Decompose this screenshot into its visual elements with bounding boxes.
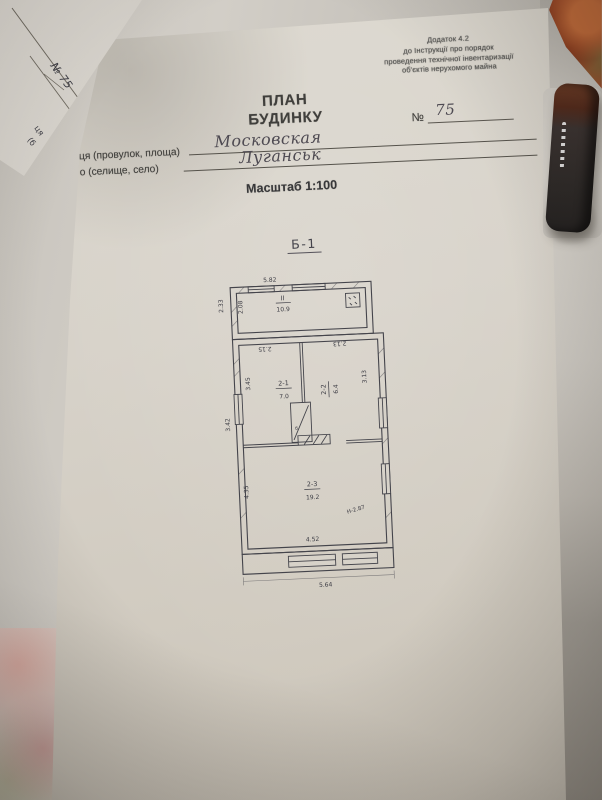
dim-veranda-width: 5.82	[263, 277, 277, 285]
stove-symbol	[298, 434, 330, 445]
room1-area: 7.0	[279, 393, 289, 400]
city-field-label: о (селище, село)	[79, 164, 158, 179]
dark-object-area	[543, 80, 602, 255]
underlay-fragment: ця	[32, 124, 45, 138]
dim-room3-side: 4.35	[243, 485, 251, 499]
dim-room2-top: 2.13	[333, 339, 347, 347]
room3-number: 2-3	[307, 480, 318, 488]
number-value-handwritten: 75	[435, 100, 456, 119]
street-field-label: ця (провулок, площа)	[79, 147, 180, 163]
dim-left-wall: 3.42	[225, 418, 233, 432]
building-label: Б-1	[287, 236, 321, 255]
document-content: Додаток 4.2 до Інструкції про порядок пр…	[82, 16, 587, 800]
appendix-note: Додаток 4.2 до Інструкції про порядок пр…	[360, 31, 538, 78]
furnace-symbol	[345, 293, 360, 308]
dim-room1-top: 2.15	[258, 345, 272, 353]
plan-document-sheet: Додаток 4.2 до Інструкції про порядок пр…	[0, 0, 602, 800]
interior-partitions	[239, 339, 383, 448]
number-underline	[428, 119, 514, 124]
photo-of-building-plan-document: Додаток 4.2 до Інструкції про порядок пр…	[0, 0, 602, 800]
number-label: №	[411, 112, 424, 125]
dim-bottom-inner: 4.52	[306, 536, 320, 544]
dim-veranda-left-outer: 2.33	[218, 299, 226, 313]
room1-number: 2-1	[278, 379, 289, 387]
wall-outlines	[230, 281, 394, 575]
room-veranda-area: 10.9	[276, 306, 290, 314]
dim-veranda-left-inner: 2.08	[237, 300, 245, 314]
scale-label: Масштаб 1:100	[191, 175, 391, 198]
underlay-number: № 75	[47, 59, 75, 91]
city-underline	[184, 155, 538, 172]
room2-area: 6.4	[333, 384, 340, 394]
dim-room1-side: 3.45	[245, 377, 253, 391]
closet-mark: б	[295, 426, 298, 432]
dim-bottom-outer: 5.64	[319, 581, 333, 589]
height-note: Н-2.87	[346, 505, 366, 516]
room-veranda-number: II	[281, 294, 285, 302]
document-title: ПЛАН БУДИНКУ	[202, 88, 367, 131]
dim-room2-side: 3.13	[361, 370, 369, 384]
floor-plan-drawing: 5.82 II 10.9 2.33 2.08 2.15 2.13 2-1 7.0…	[212, 264, 427, 603]
room2-number: 2-2	[320, 384, 328, 395]
room3-area: 19.2	[306, 494, 320, 502]
underlay-fragment: (б	[25, 136, 37, 148]
city-value-handwritten: Луганськ	[239, 144, 322, 167]
